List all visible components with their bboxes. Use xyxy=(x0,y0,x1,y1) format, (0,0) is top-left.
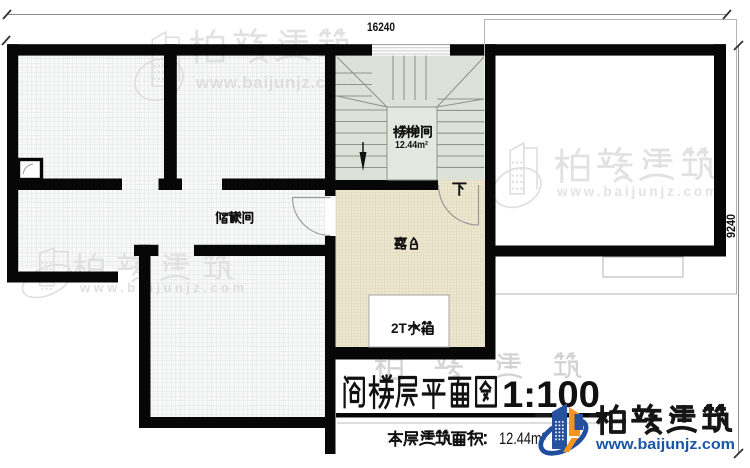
svg-text:9240: 9240 xyxy=(724,214,738,238)
svg-text:2T: 2T xyxy=(391,321,408,336)
svg-text:www.baijunjz.com: www.baijunjz.com xyxy=(595,437,735,453)
svg-text:16240: 16240 xyxy=(367,20,395,34)
svg-text:12.44m²: 12.44m² xyxy=(395,139,428,151)
svg-text:1:100: 1:100 xyxy=(502,373,600,415)
